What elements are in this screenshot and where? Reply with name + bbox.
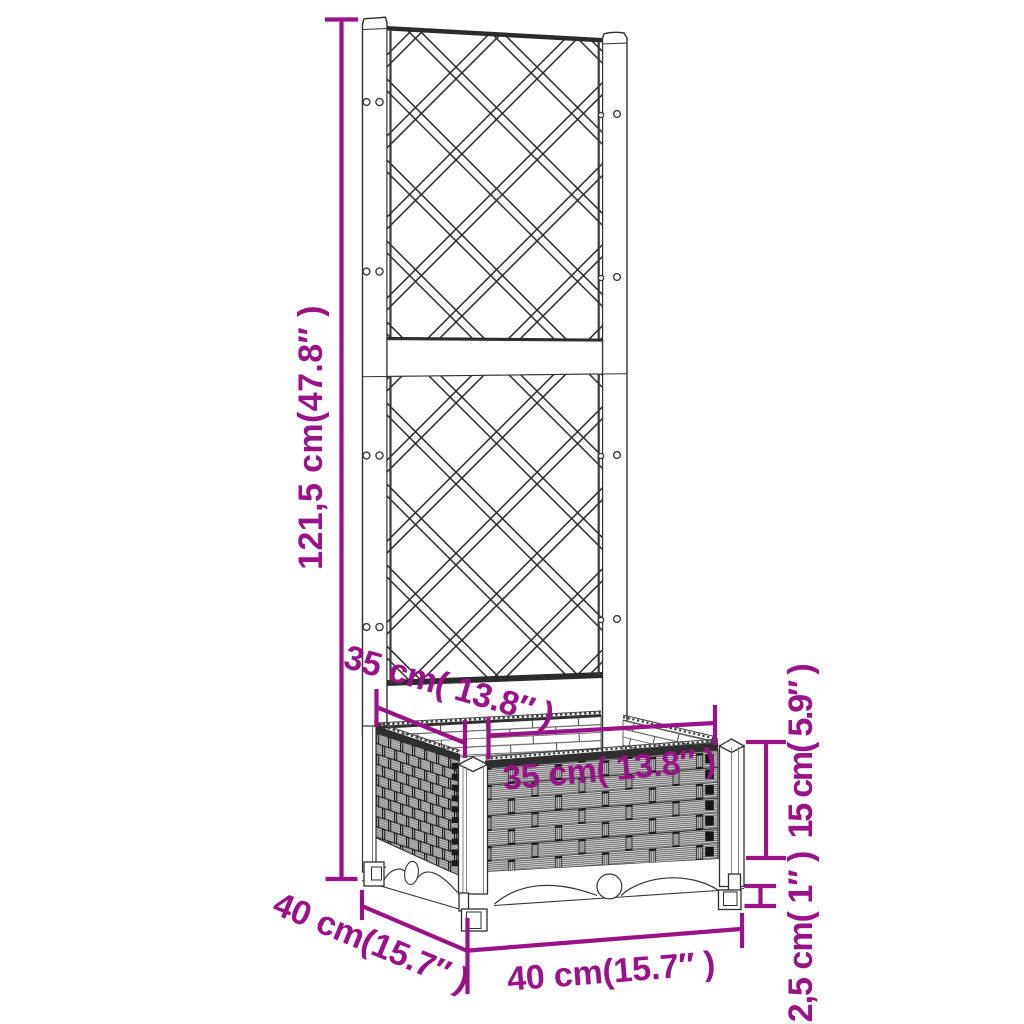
svg-text:121,5 cm(47.8″ ): 121,5 cm(47.8″ ): [292, 305, 330, 570]
svg-text:15 cm( 5.9″ ): 15 cm( 5.9″ ): [782, 665, 820, 839]
svg-text:2,5 cm( 1″ ): 2,5 cm( 1″ ): [782, 852, 820, 1023]
